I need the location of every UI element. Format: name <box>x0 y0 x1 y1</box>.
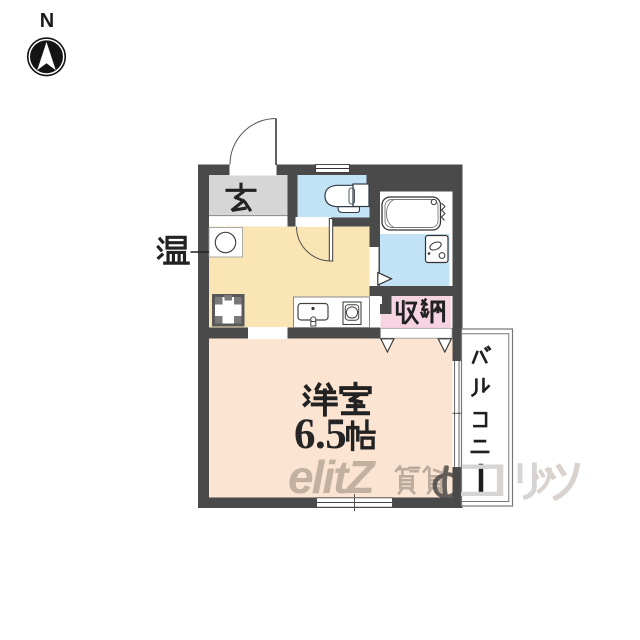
svg-text:N: N <box>40 10 54 32</box>
svg-text:elitZ: elitZ <box>288 451 376 503</box>
